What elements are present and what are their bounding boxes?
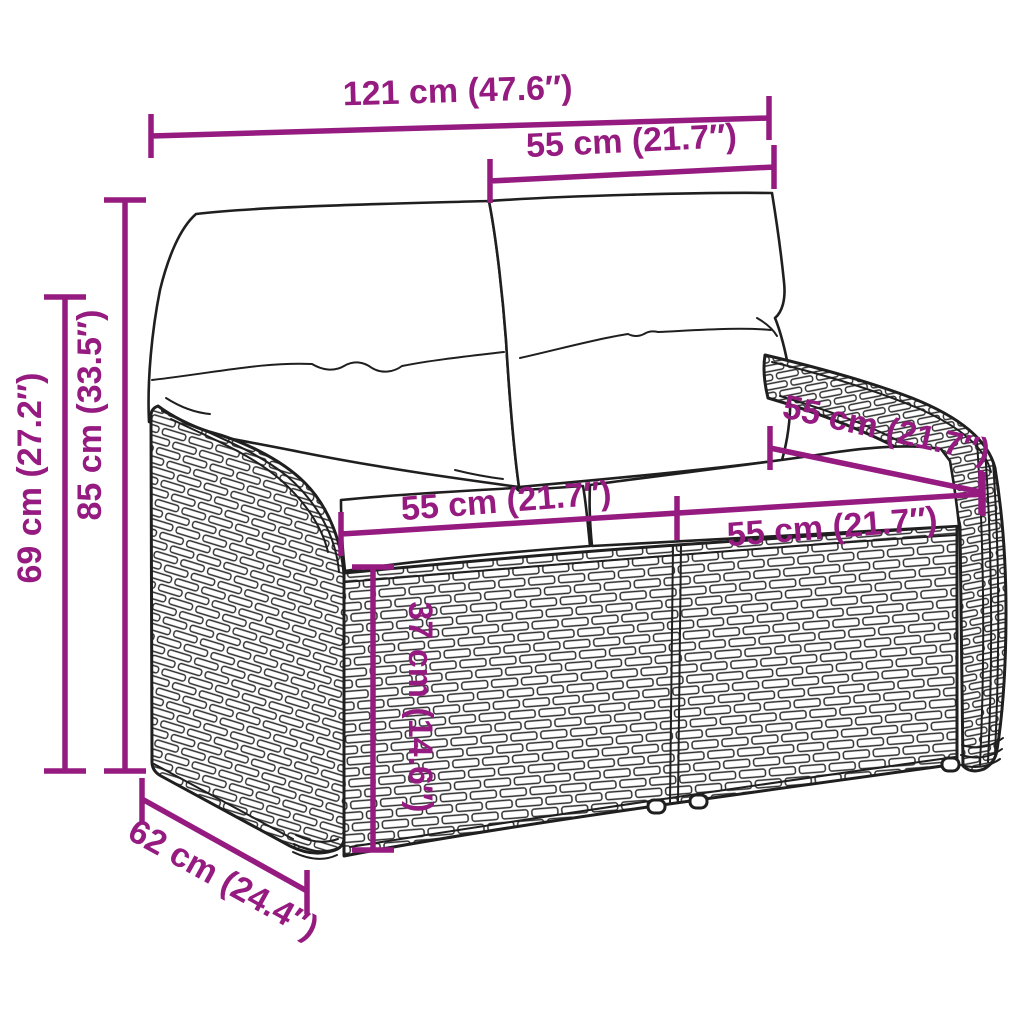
- product-dimension-diagram: 121 cm (47.6″) 55 cm (21.7″) 85 cm (33.5…: [0, 0, 1024, 1024]
- foot-center-left: [648, 800, 665, 813]
- armrest-left: [151, 406, 344, 859]
- dim-total-height: 85 cm (33.5″): [71, 200, 146, 771]
- dim-total-height-label: 85 cm (33.5″): [71, 310, 109, 521]
- bench-illustration-svg: 121 cm (47.6″) 55 cm (21.7″) 85 cm (33.5…: [0, 0, 1024, 1024]
- dim-backrest-width: 55 cm (21.7″): [490, 117, 774, 203]
- dim-overall-width-label: 121 cm (47.6″): [342, 69, 573, 114]
- dim-arm-height-label: 69 cm (27.2″): [11, 373, 49, 584]
- back-cushion-right: [489, 193, 790, 487]
- foot-center-right: [690, 795, 707, 808]
- foot-front-right: [942, 758, 959, 771]
- dim-seat-height-label: 37 cm (14.6″): [401, 602, 439, 813]
